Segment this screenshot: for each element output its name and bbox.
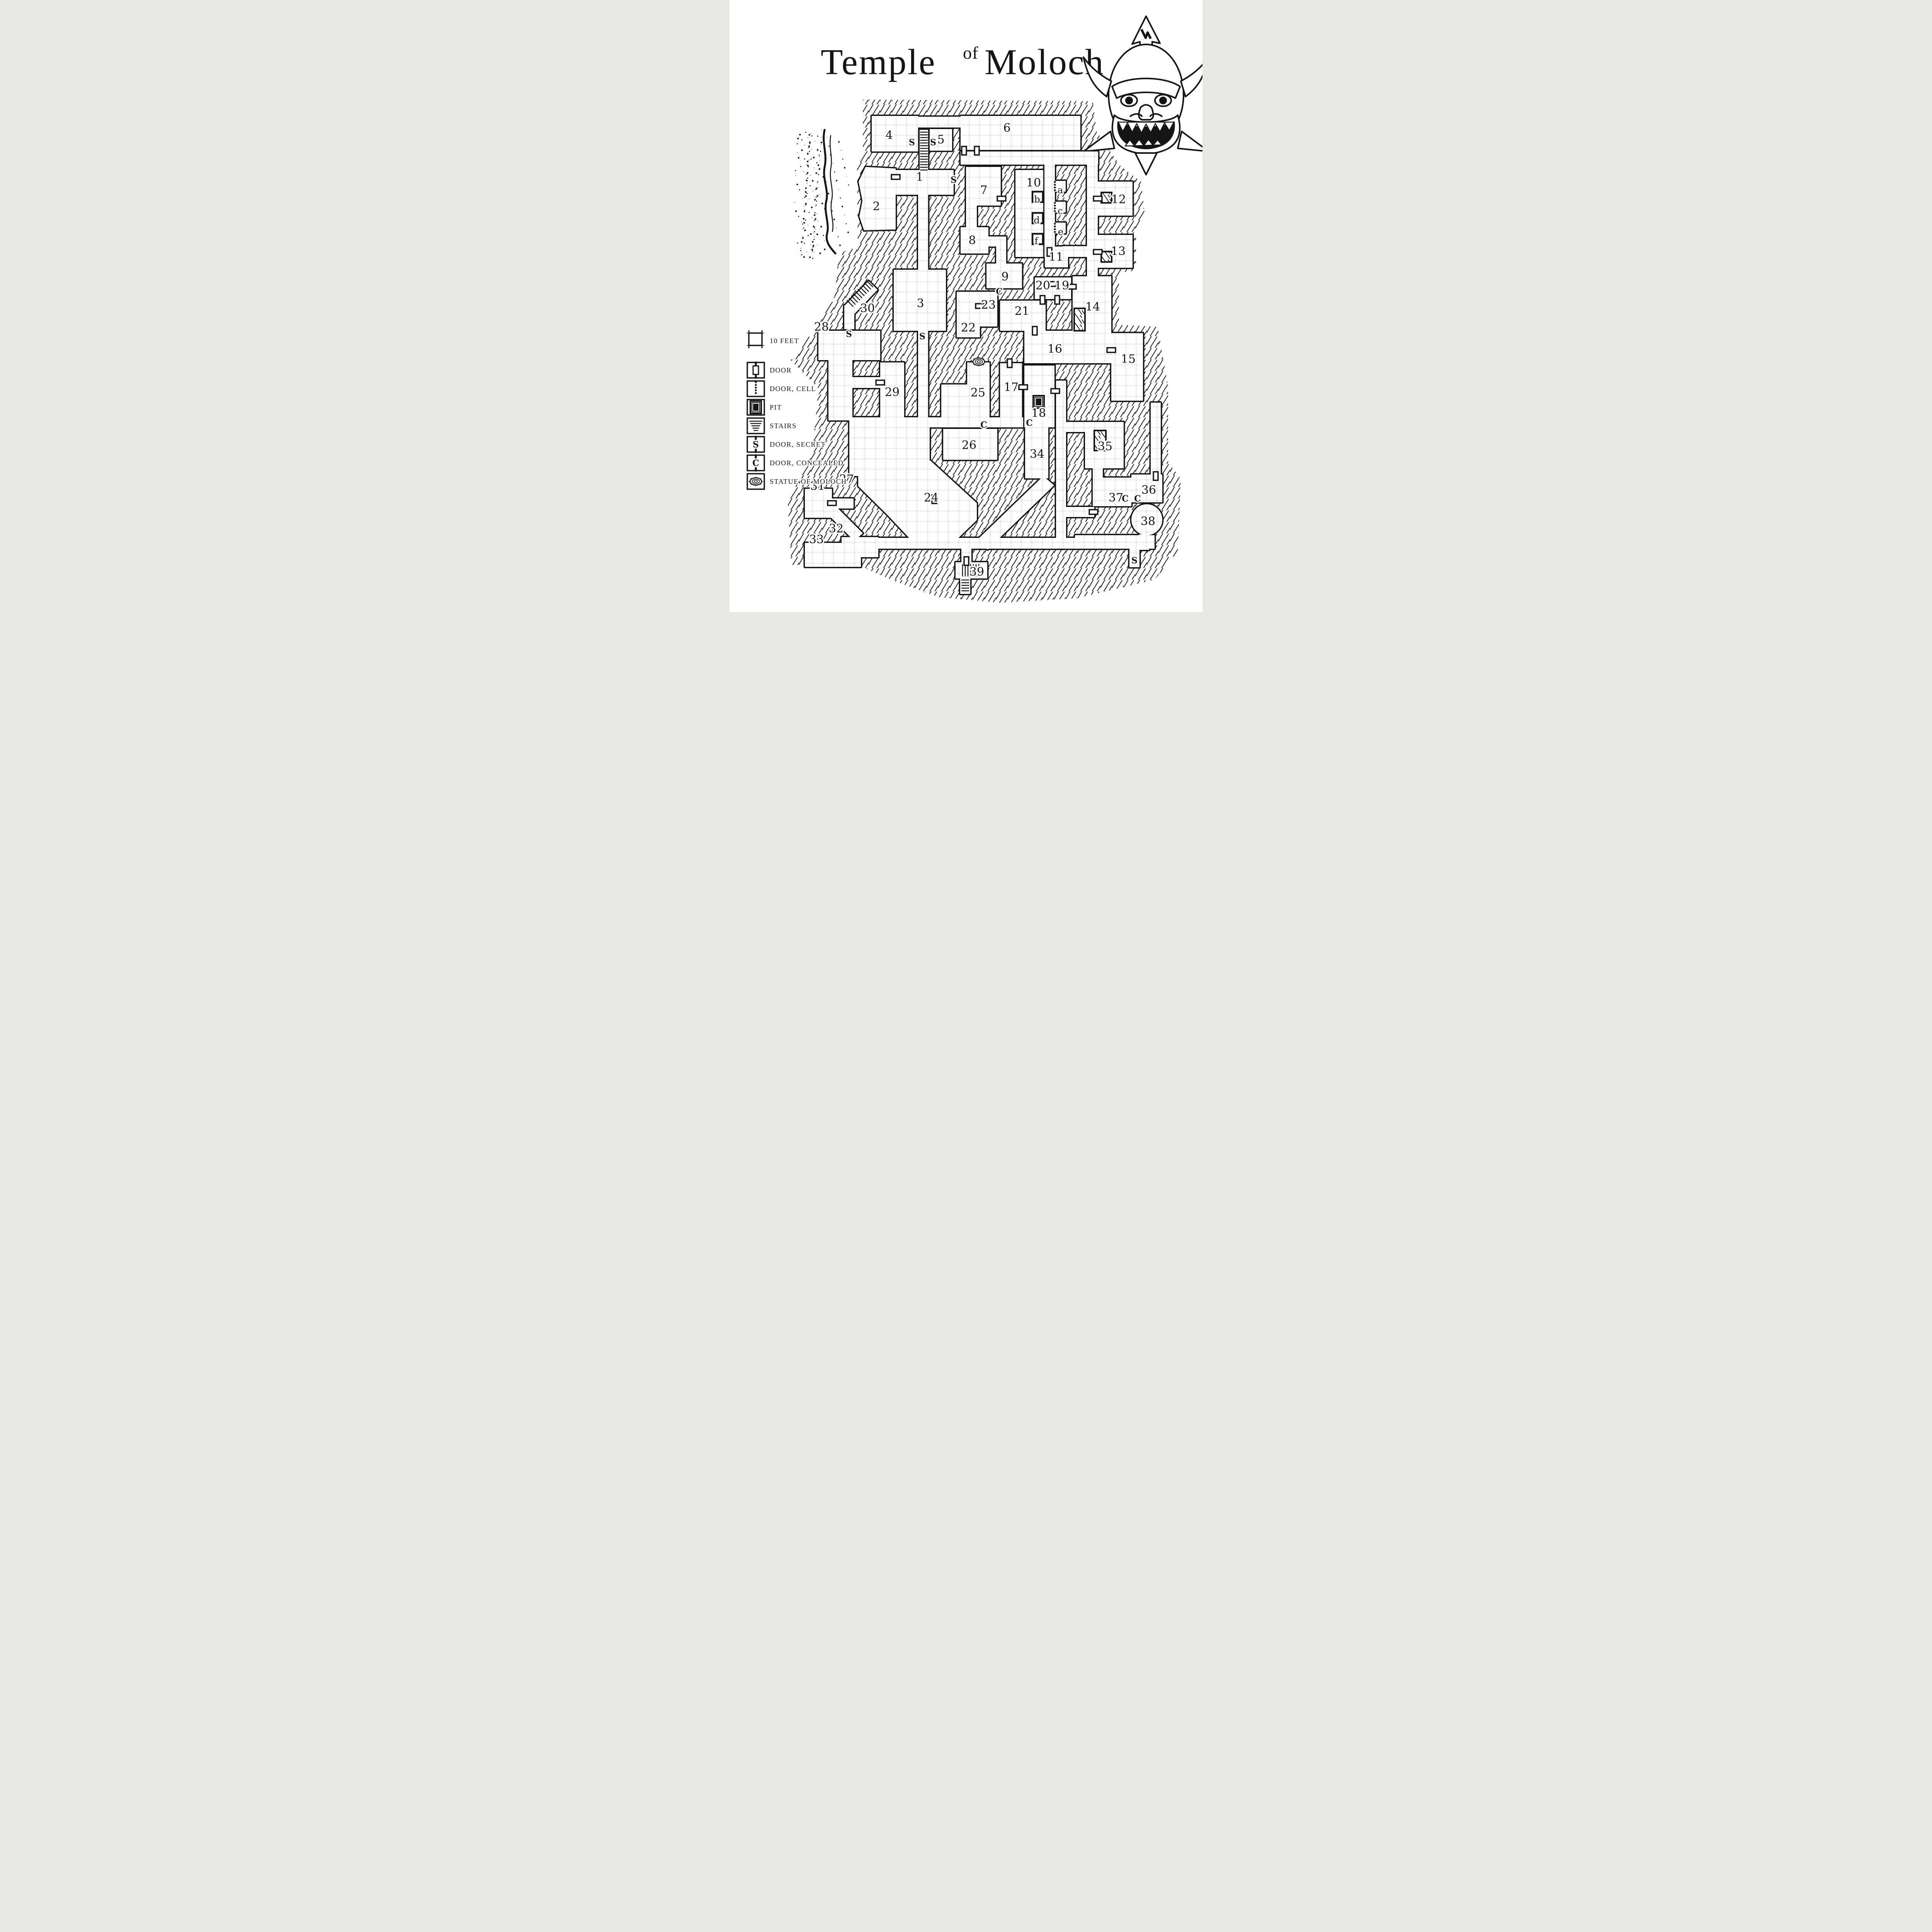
stipple-dot: [818, 187, 818, 187]
stipple-dot: [809, 160, 810, 161]
stipple-dot: [833, 219, 835, 220]
stipple-dot: [805, 195, 807, 197]
pillar: [1074, 308, 1085, 331]
stipple-dot: [846, 176, 847, 177]
stipple-dot: [811, 249, 813, 250]
corridor-35-west: [1062, 422, 1087, 432]
stipple-dot: [804, 210, 805, 211]
room-label-d: d: [1034, 215, 1039, 226]
stipple-dot: [805, 132, 806, 133]
page-title-word-2: of: [963, 43, 978, 63]
legend-label-statue: STATUE OF MOLOCH: [770, 478, 847, 485]
stipple-dot: [806, 173, 807, 175]
legend-label-door-concealed: DOOR, CONCEALED: [770, 459, 844, 467]
legend-item-door: DOOR: [747, 362, 792, 378]
stipple-dot: [821, 142, 822, 143]
stipple-dot: [818, 174, 819, 175]
stipple-dot: [810, 233, 811, 235]
stipple-dot: [800, 256, 801, 257]
stipple-dot: [813, 239, 815, 240]
stipple-dot: [807, 153, 808, 155]
stipple-dot: [815, 172, 817, 174]
secret-door-marker: S: [930, 138, 936, 148]
stipple-dot: [806, 183, 807, 184]
stipple-dot: [811, 135, 813, 136]
door-icon: [1040, 296, 1045, 304]
stipple-dot: [842, 158, 844, 160]
stipple-dot: [816, 233, 818, 235]
stipple-dot: [821, 137, 822, 138]
stipple-dot: [809, 212, 810, 213]
stair-39-exit: [960, 578, 970, 594]
stipple-dot: [816, 201, 817, 202]
stipple-dot: [810, 185, 811, 186]
stipple-dot: [846, 223, 847, 224]
legend-item-pit: PIT: [747, 400, 782, 415]
stipple-dot: [820, 226, 822, 227]
stipple-dot: [804, 211, 805, 212]
room-label-20: 20: [1036, 279, 1050, 293]
stipple-dot: [803, 236, 803, 237]
legend-label-door: DOOR: [770, 366, 792, 374]
stipple-dot: [809, 198, 810, 199]
stipple-dot: [803, 218, 804, 219]
stipple-dot: [813, 226, 815, 227]
stipple-dot: [797, 152, 798, 153]
stipple-dot: [824, 208, 825, 209]
room-label-24: 24: [924, 491, 939, 505]
room-label-7: 7: [980, 184, 987, 197]
door-icon: [876, 380, 884, 385]
secret-door-marker: S: [1131, 556, 1138, 566]
stipple-dot: [807, 161, 808, 162]
stipple-dot: [817, 244, 818, 245]
stipple-dot: [805, 191, 806, 193]
door-icon: [828, 501, 836, 505]
room-label-1: 1: [916, 170, 923, 184]
stipple-dot: [808, 166, 809, 167]
room-label-8: 8: [968, 234, 976, 247]
stipple-dot: [795, 210, 797, 212]
stipple-dot: [820, 168, 821, 168]
stipple-dot: [808, 153, 808, 153]
room-label-36: 36: [1141, 483, 1156, 497]
stipple-dot: [801, 241, 803, 243]
door-icon: [1007, 359, 1012, 367]
room-label-37: 37: [1109, 491, 1123, 505]
stipple-dot: [817, 136, 818, 137]
stipple-dot: [806, 252, 807, 252]
stipple-dot: [802, 237, 804, 239]
room-label-6: 6: [1003, 121, 1010, 135]
stipple-dot: [803, 228, 804, 229]
stipple-dot: [796, 184, 798, 185]
stipple-dot: [811, 158, 812, 160]
stipple-dot: [810, 175, 811, 176]
door-icon: [1153, 472, 1158, 480]
door-icon: [1051, 389, 1060, 393]
legend-label-pit: PIT: [770, 403, 782, 411]
moloch-nose-icon: [1139, 105, 1153, 120]
secret-door-marker: S: [951, 175, 957, 185]
corridor-3-south: [918, 331, 928, 420]
room-label-18: 18: [1031, 406, 1046, 420]
stipple-dot: [838, 236, 839, 237]
stipple-dot: [824, 240, 825, 241]
pit-icon: [750, 401, 761, 413]
corridor-11-east: [1063, 246, 1088, 257]
stipple-dot: [812, 247, 813, 248]
stipple-dot: [805, 187, 807, 189]
stipple-dot: [815, 218, 816, 220]
page-title-word-1: Temple: [821, 42, 936, 82]
stipple-dot: [836, 228, 837, 228]
room-label-21: 21: [1015, 304, 1029, 318]
stipple-dot: [838, 141, 840, 143]
pillar: [1101, 252, 1112, 262]
door-concealed-letter: C: [752, 458, 759, 468]
room-label-29: 29: [885, 386, 900, 399]
corridor-top: [915, 117, 964, 128]
stipple-dot: [816, 162, 817, 163]
stipple-dot: [801, 139, 803, 141]
room-label-22: 22: [961, 321, 976, 335]
stipple-dot: [804, 243, 805, 244]
stipple-dot: [799, 189, 800, 190]
door-icon: [1094, 196, 1102, 201]
room-label-38: 38: [1141, 515, 1155, 528]
stipple-dot: [828, 193, 829, 194]
stipple-dot: [819, 168, 820, 170]
corridor-east-down: [1151, 403, 1161, 478]
stipple-dot: [834, 172, 835, 173]
stipple-dot: [838, 189, 839, 190]
map-sheet: Temple of Moloch SSSSSSCCCCC 12345678910…: [730, 0, 1202, 612]
room-label-4: 4: [885, 129, 893, 142]
stipple-dot: [801, 221, 802, 222]
stipple-dot: [827, 137, 827, 138]
stipple-dot: [808, 137, 808, 138]
concealed-door-marker: C: [996, 287, 1003, 297]
stipple-dot: [803, 256, 805, 258]
stipple-dot: [817, 149, 818, 151]
stipple-dot: [823, 176, 824, 177]
room-label-32: 32: [829, 522, 844, 536]
room-label-10: 10: [1026, 176, 1041, 190]
room-label-14: 14: [1085, 300, 1100, 314]
room-label-15: 15: [1121, 352, 1136, 366]
pit-hole: [1036, 398, 1041, 405]
room-label-39: 39: [969, 565, 984, 579]
stipple-dot: [840, 197, 841, 199]
stipple-dot: [796, 175, 796, 176]
stipple-dot: [824, 248, 825, 250]
room-label-19: 19: [1054, 279, 1069, 293]
stipple-dot: [848, 184, 849, 185]
stipple-dot: [844, 215, 845, 216]
stipple-dot: [813, 245, 814, 247]
stipple-dot: [802, 229, 803, 230]
stipple-dot: [800, 166, 801, 167]
legend-item-stairs: STAIRS: [747, 418, 797, 434]
stipple-dot: [823, 235, 824, 236]
stipple-dot: [820, 160, 820, 161]
room-1: [896, 170, 954, 195]
stipple-dot: [808, 235, 809, 236]
moloch-pupil-left-icon: [1126, 97, 1132, 104]
stairs-icon: [920, 132, 927, 170]
stipple-dot: [816, 187, 817, 189]
stipple-dot: [809, 143, 810, 144]
stipple-dot: [814, 199, 816, 201]
door-icon: [1107, 348, 1116, 352]
stipple-dot: [812, 250, 813, 252]
corridor-36-west: [1100, 478, 1133, 488]
room-label-e: e: [1058, 226, 1063, 237]
stipple-dot: [815, 141, 816, 142]
cliff-stipple-dots: [794, 129, 849, 259]
door-icon: [1055, 296, 1060, 304]
door-icon: [1089, 510, 1098, 514]
stipple-dot: [816, 197, 817, 198]
stipple-dot: [813, 191, 813, 192]
stipple-dot: [808, 147, 809, 148]
stipple-dot: [798, 157, 799, 158]
corridor-38-neck: [1139, 534, 1149, 550]
moloch-chin-spike-icon: [1135, 153, 1157, 175]
room-label-35: 35: [1098, 440, 1112, 453]
statue-of-moloch-icon: [972, 357, 986, 366]
legend-label-door-cell: DOOR, CELL: [770, 385, 816, 393]
stipple-dot: [804, 158, 805, 160]
cell-corridor: [1044, 162, 1055, 257]
stipple-dot: [814, 214, 815, 216]
room-label-9: 9: [1001, 270, 1009, 284]
stipple-dot: [807, 165, 808, 166]
stipple-dot: [818, 221, 819, 222]
door-icon: [1019, 385, 1027, 389]
stipple-dot: [817, 183, 818, 184]
stipple-dot: [821, 202, 823, 204]
stipple-dot: [803, 172, 804, 172]
scale-square-icon: [749, 333, 762, 345]
stipple-dot: [842, 206, 843, 207]
room-label-23: 23: [981, 298, 996, 312]
room-label-5: 5: [937, 133, 944, 146]
stipple-dot: [819, 156, 820, 157]
stipple-dot: [815, 206, 816, 207]
legend-label-stairs: STAIRS: [770, 422, 797, 430]
stipple-dot: [802, 223, 803, 224]
stipple-dot: [800, 250, 801, 251]
room-label-13: 13: [1111, 245, 1126, 258]
stipple-dot: [815, 212, 816, 213]
room-label-33: 33: [809, 533, 824, 546]
cliff-edge-line: [824, 130, 835, 253]
pit-hole: [753, 404, 759, 411]
cave-2: [859, 167, 896, 230]
stipple-dot: [814, 227, 815, 228]
temple-of-moloch-dungeon-map: Temple of Moloch SSSSSSCCCCC 12345678910…: [730, 0, 1202, 612]
stipple-dot: [832, 210, 833, 211]
cliff-edge-inner-line: [830, 135, 833, 232]
stipple-dot: [802, 198, 803, 199]
stipple-dot: [804, 197, 805, 198]
stipple-dot: [805, 190, 806, 191]
stipple-dot: [809, 257, 811, 258]
door-icon: [1032, 327, 1037, 335]
stipple-dot: [804, 206, 804, 207]
stipple-dot: [839, 245, 841, 246]
door-secret-letter: S: [753, 440, 759, 450]
stipple-dot: [847, 231, 849, 233]
room-label-17: 17: [1004, 381, 1019, 394]
stipple-dot: [807, 172, 808, 173]
stipple-dot: [816, 213, 817, 214]
corridor-under-6: [961, 151, 1098, 165]
stipple-dot: [820, 151, 821, 152]
stipple-dot: [819, 155, 820, 156]
door-icon: [997, 196, 1006, 201]
door-icon: [1094, 250, 1102, 254]
stipple-dot: [830, 202, 831, 203]
stipple-dot: [819, 252, 821, 254]
room-label-3: 3: [917, 297, 924, 310]
corridor-30-south: [844, 305, 854, 329]
room-label-11: 11: [1049, 250, 1063, 264]
corridor-right-vertical: [1056, 381, 1066, 549]
cliff-edge-group: [794, 129, 849, 259]
stipple-dot: [810, 244, 811, 245]
door-icon: [891, 175, 900, 179]
stipple-dot: [821, 145, 821, 145]
legend-scale-row: 10 FEET: [747, 331, 799, 348]
room-label-25: 25: [971, 386, 985, 400]
room-label-12: 12: [1111, 193, 1126, 206]
door-icon: [975, 146, 979, 155]
corridor-1-3: [918, 192, 928, 272]
stipple-dot: [799, 134, 801, 135]
stipple-dot: [809, 134, 810, 136]
stipple-dot: [814, 231, 815, 232]
stipple-dot: [828, 241, 828, 241]
moloch-ear-right-icon: [1181, 57, 1202, 97]
room-label-28: 28: [814, 320, 829, 334]
corridor-9-north: [996, 236, 1006, 266]
stipple-dot: [817, 181, 818, 182]
stipple-dot: [795, 170, 796, 171]
stipple-dot: [808, 225, 808, 226]
stipple-dot: [811, 207, 813, 208]
corridor-7-8: [966, 203, 977, 230]
room-label-c: c: [1058, 206, 1063, 216]
stipple-dot: [813, 157, 815, 158]
stipple-dot: [836, 180, 837, 182]
corridor-east-vertical: [1087, 151, 1098, 279]
stipple-dot: [819, 194, 820, 195]
stipple-dot: [804, 145, 805, 146]
stipple-dot: [806, 180, 808, 181]
stipple-dot: [811, 133, 811, 134]
room-label-30: 30: [860, 302, 875, 315]
stipple-dot: [798, 216, 799, 217]
stipple-dot: [812, 258, 813, 259]
stipple-dot: [840, 150, 841, 151]
stipple-dot: [814, 236, 815, 237]
concealed-door-marker: C: [980, 420, 987, 430]
room-15: [1111, 333, 1143, 401]
stipple-dot: [803, 222, 805, 223]
stipple-dot: [812, 241, 813, 242]
stipple-dot: [797, 138, 799, 139]
door-icon: [753, 366, 759, 374]
stipple-dot: [797, 243, 798, 244]
stipple-dot: [813, 233, 814, 233]
secret-door-marker: S: [919, 332, 925, 342]
stipple-dot: [797, 143, 798, 145]
stipple-dot: [818, 164, 819, 166]
door-icon: [964, 557, 969, 565]
legend-scale-label: 10 FEET: [770, 337, 799, 345]
secret-door-marker: S: [846, 329, 852, 339]
stipple-dot: [844, 167, 845, 168]
stipple-dot: [806, 179, 806, 180]
stipple-dot: [801, 149, 803, 151]
stipple-dot: [809, 141, 811, 143]
room-6: [961, 116, 1080, 150]
stipple-dot: [805, 219, 806, 221]
stipple-dot: [804, 230, 806, 231]
moloch-fin-right-icon: [1178, 131, 1202, 151]
legend-label-door-secret: DOOR, SECRET: [770, 440, 826, 448]
legend-item-door-cell: DOOR, CELL: [747, 381, 816, 396]
stipple-dot: [807, 178, 808, 179]
stipple-dot: [828, 146, 830, 147]
room-label-34: 34: [1030, 447, 1044, 461]
stipple-dot: [801, 248, 801, 249]
secret-door-marker: S: [909, 138, 915, 148]
stipple-dot: [812, 180, 813, 182]
stipple-dot: [826, 214, 827, 214]
stipple-dot: [832, 163, 833, 164]
stipple-dot: [815, 229, 816, 230]
stipple-dot: [816, 204, 817, 206]
concealed-door-marker: C: [1134, 494, 1141, 504]
stipple-dot: [825, 182, 827, 183]
stipple-dot: [806, 164, 807, 165]
door-icon: [962, 146, 966, 155]
moloch-pupil-right-icon: [1160, 97, 1166, 104]
room-label-b: b: [1034, 194, 1040, 205]
room-33: [805, 543, 861, 567]
stipple-dot: [814, 168, 815, 168]
room-label-16: 16: [1048, 342, 1062, 356]
room-label-26: 26: [962, 439, 976, 452]
corridor-28-south: [828, 358, 852, 420]
stipple-dot: [821, 129, 822, 130]
room-25-west: [941, 384, 969, 418]
stipple-dot: [811, 148, 812, 149]
stipple-dot: [814, 252, 815, 253]
room-label-2: 2: [872, 200, 880, 213]
stipple-dot: [806, 193, 808, 194]
room-label-a: a: [1058, 185, 1063, 196]
stipple-dot: [817, 195, 818, 197]
stipple-dot: [814, 220, 815, 221]
statue-of-moloch-icon: [749, 477, 763, 486]
pillar: [1101, 192, 1112, 203]
stipple-dot: [811, 218, 812, 218]
